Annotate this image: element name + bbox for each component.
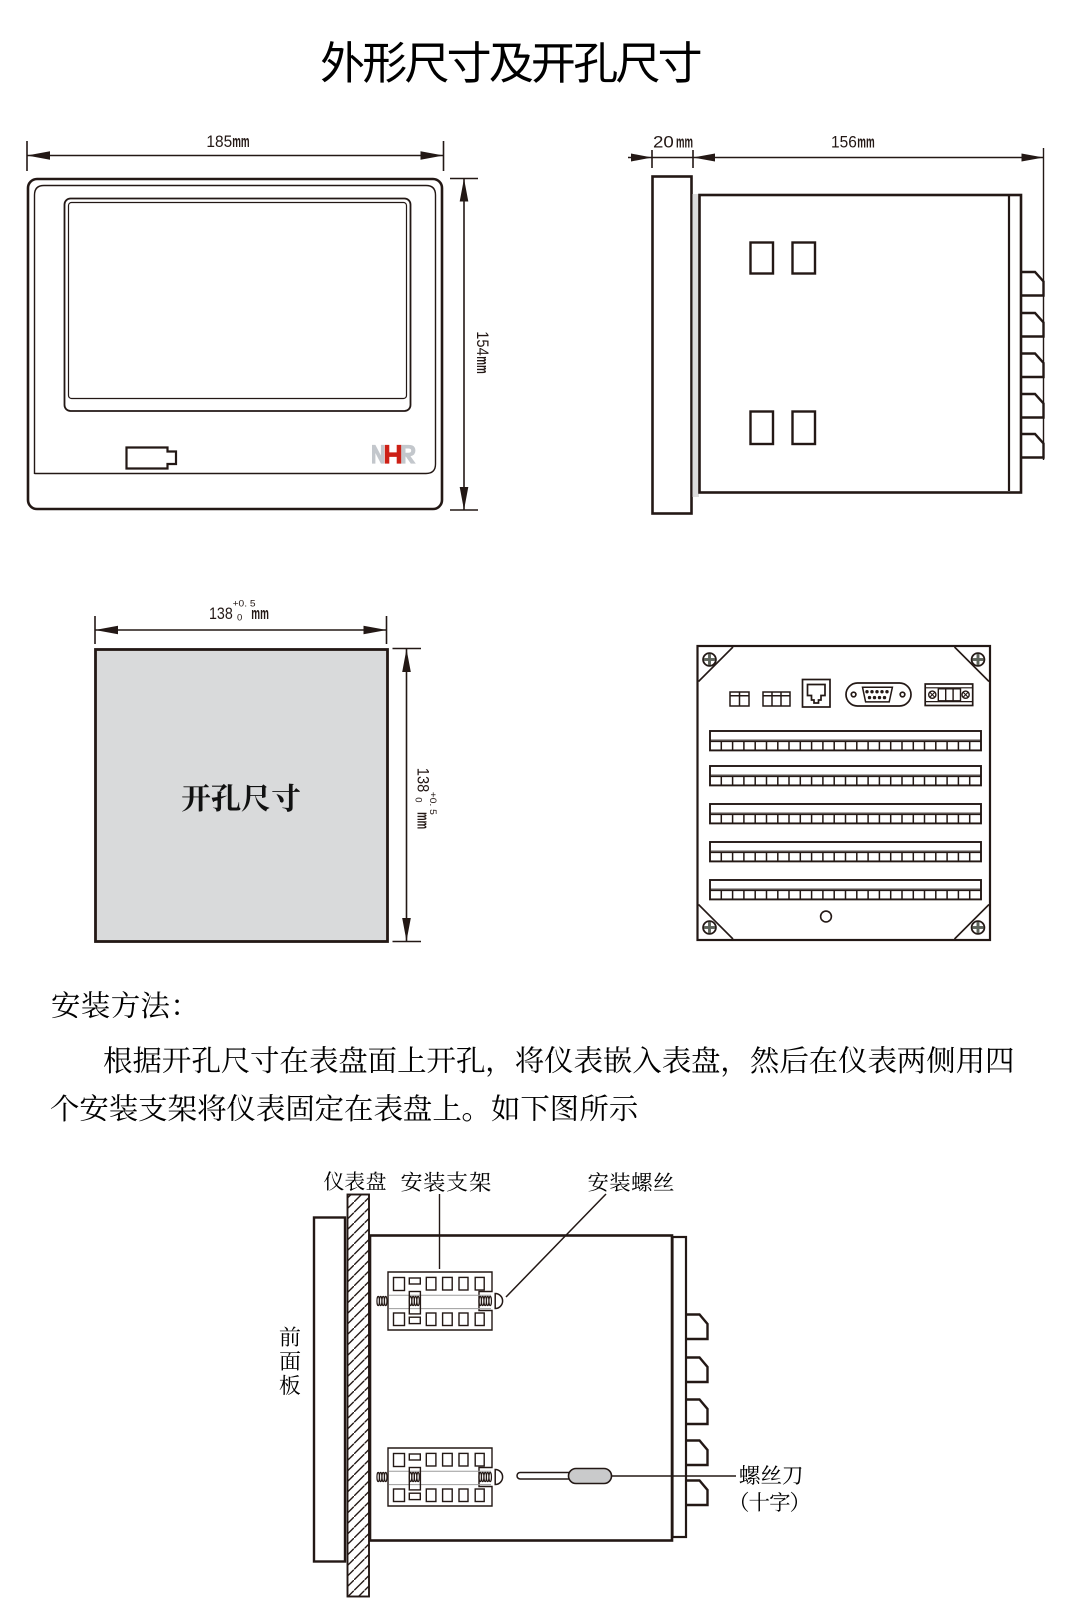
- svg-text:0: 0: [413, 797, 424, 802]
- svg-text:20: 20: [653, 133, 674, 152]
- svg-text:mm: mm: [251, 604, 269, 623]
- svg-text:138: 138: [414, 768, 433, 793]
- svg-text:mm: mm: [473, 356, 491, 374]
- svg-text:138: 138: [209, 604, 233, 623]
- svg-text:0: 0: [237, 613, 242, 624]
- svg-text:mm: mm: [676, 134, 693, 152]
- svg-text:154: 154: [473, 331, 491, 355]
- svg-text:mm: mm: [232, 133, 249, 151]
- svg-text:mm: mm: [857, 134, 874, 152]
- svg-text:156: 156: [831, 134, 857, 152]
- svg-text:mm: mm: [414, 812, 433, 829]
- svg-text:185: 185: [206, 133, 232, 151]
